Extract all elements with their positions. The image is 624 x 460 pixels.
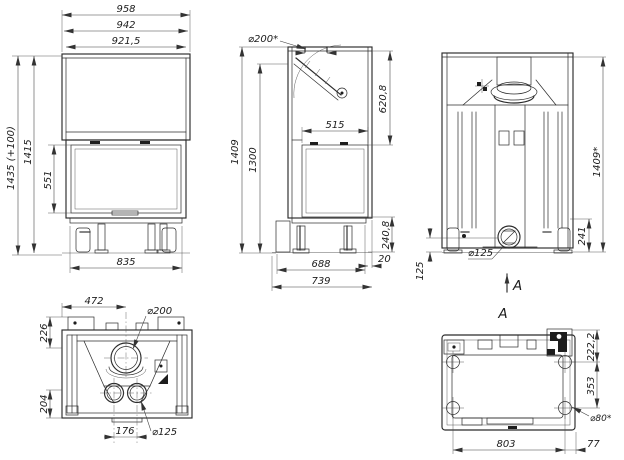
dim-bottom-hole-spacing-width: 803	[496, 439, 515, 450]
latch-mechanism-right	[547, 329, 572, 356]
technical-drawing-sheet: 958 942 921,5 1435 (+100) 1415 551 835	[0, 0, 624, 460]
side-glass-frame	[302, 145, 368, 217]
back-view-dimensions: 1409* 241 125 ⌀125 A	[415, 57, 606, 294]
flue-collar	[491, 57, 537, 103]
dim-top-front-edge-offset: 226	[39, 323, 50, 342]
front-door-frame	[66, 140, 186, 218]
dim-back-outlet-diameter: ⌀125	[468, 248, 493, 259]
convection-opening-left	[499, 131, 509, 145]
dim-back-height-total: 1409*	[592, 147, 603, 177]
dim-bottom-hole-spacing-depth: 353	[586, 376, 597, 395]
dim-front-overall-width: 958	[116, 4, 135, 15]
dim-top-rear-edge-offset: 204	[39, 394, 50, 413]
dim-bottom-hole-front-offset: 222,2	[586, 333, 597, 362]
dim-bottom-hole-side-offset: 77	[587, 439, 600, 450]
front-view-body	[62, 54, 190, 253]
dim-side-glass-width: 515	[325, 120, 344, 131]
back-view-body	[442, 53, 573, 253]
side-view-body	[272, 45, 372, 253]
dim-top-flue-diameter: ⌀200	[147, 306, 172, 317]
fireplace-technical-drawing: 958 942 921,5 1435 (+100) 1415 551 835	[0, 0, 624, 460]
dim-side-base-height: 240,8	[381, 221, 392, 250]
bottom-view-body	[442, 329, 576, 430]
top-view: 472 ⌀200 226 204 176 ⌀125	[39, 296, 192, 443]
bottom-view-dimensions: 222,2 353 ⌀80* 803 77	[453, 330, 612, 454]
dim-side-height-total: 1409	[230, 139, 241, 164]
dim-front-glass-height: 551	[43, 170, 54, 189]
dim-bottom-hole-diameter: ⌀80*	[590, 414, 612, 424]
top-view-dimensions: 472 ⌀200 226 204 176 ⌀125	[39, 296, 177, 438]
dim-side-total-depth: 739	[311, 276, 330, 287]
rear-smoke-outlet	[498, 226, 520, 248]
top-view-body	[62, 312, 192, 443]
mount-bracket-left	[68, 317, 94, 330]
dim-front-base-width: 835	[116, 257, 135, 268]
front-glass	[75, 149, 177, 209]
back-view: 1409* 241 125 ⌀125 A	[415, 53, 606, 294]
dim-top-outlet-diameter: ⌀125	[152, 427, 177, 438]
dim-side-flue-diameter: ⌀200*	[248, 34, 278, 45]
side-rear-bracket	[276, 221, 290, 252]
dim-side-height-rear: 1300	[248, 147, 259, 172]
dim-front-inner-width: 921,5	[112, 36, 141, 47]
front-view: 958 942 921,5 1435 (+100) 1415 551 835	[6, 4, 190, 273]
dim-top-outlet-spacing: 176	[115, 426, 134, 437]
dim-back-outlet-center-height: 125	[415, 261, 426, 280]
dim-side-front-height: 620,8	[378, 85, 389, 114]
convection-opening-right	[514, 131, 524, 145]
dim-side-base-depth: 688	[311, 259, 330, 270]
bottom-view: A	[442, 306, 612, 454]
dim-front-height-plinth: 1435 (+100)	[6, 126, 17, 190]
front-right-foot	[162, 228, 176, 252]
bottom-view-section-label: A	[497, 306, 507, 322]
position-marker	[475, 79, 489, 93]
dim-front-mid-width: 942	[116, 20, 135, 31]
side-view: ⌀200* 620,8 515 1409 1300 240,8	[230, 34, 395, 291]
dim-front-height-total: 1415	[23, 139, 34, 164]
section-a-label: A	[512, 278, 522, 294]
dim-top-flue-center-offset: 472	[84, 296, 103, 307]
firebox-floor	[452, 355, 563, 418]
dim-back-outlet-top-height: 241	[577, 226, 588, 245]
dim-side-front-offset: 20	[378, 254, 391, 265]
